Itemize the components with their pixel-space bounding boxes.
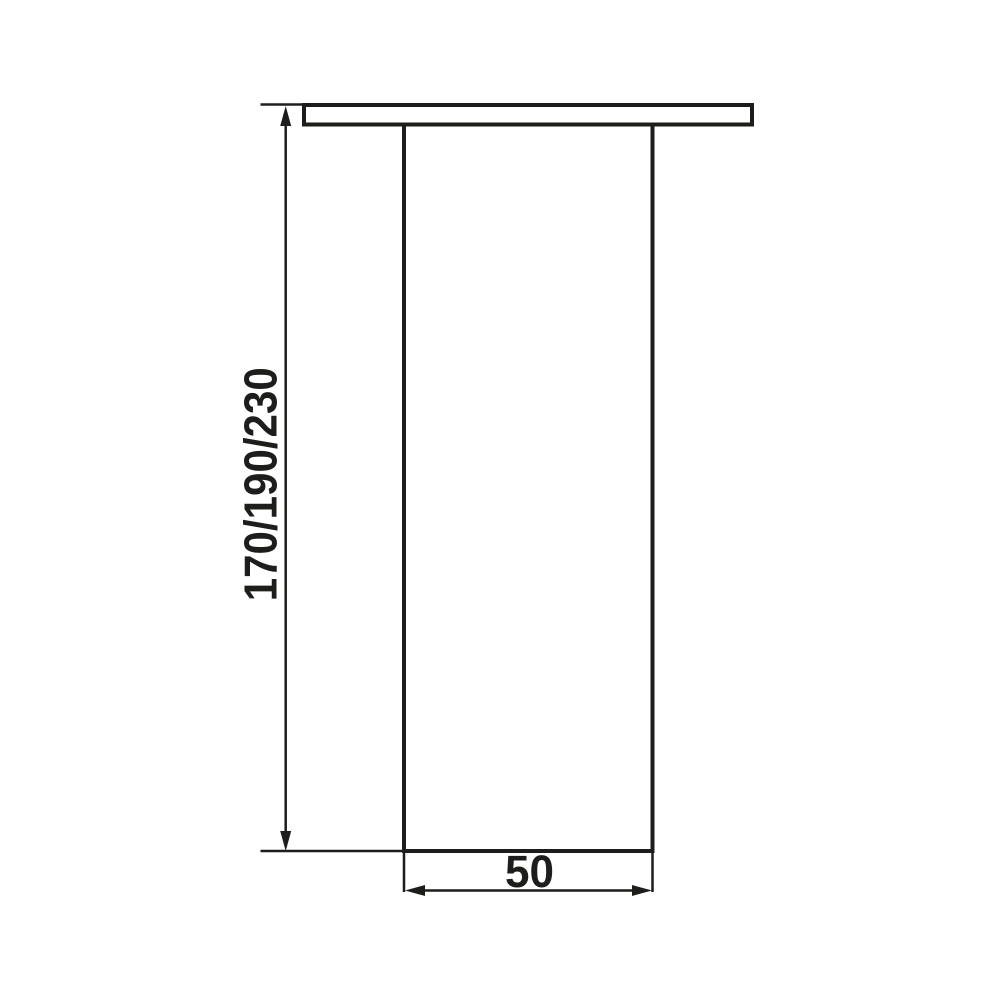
svg-text:170/190/230: 170/190/230 [235,367,287,601]
svg-text:50: 50 [505,846,554,897]
